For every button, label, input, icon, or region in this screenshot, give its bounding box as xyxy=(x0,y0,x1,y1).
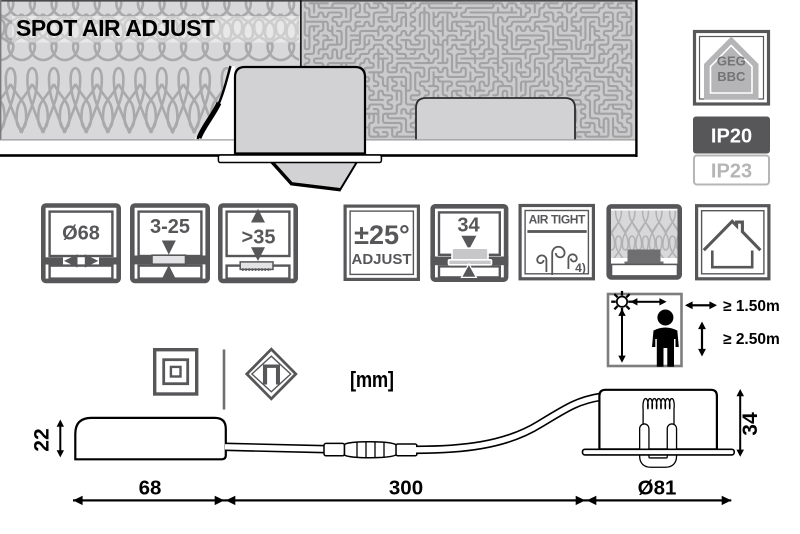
svg-text:Ø81: Ø81 xyxy=(638,477,677,500)
svg-text:±25°: ±25° xyxy=(354,220,410,250)
svg-text:ADJUST: ADJUST xyxy=(351,251,411,268)
svg-text:68: 68 xyxy=(139,477,162,500)
svg-text:Π: Π xyxy=(261,360,282,392)
svg-text:3-25: 3-25 xyxy=(150,216,190,238)
svg-text:22: 22 xyxy=(31,428,54,451)
svg-text:>35: >35 xyxy=(242,227,276,249)
svg-text:4): 4) xyxy=(575,261,586,275)
svg-text:AIR TIGHT: AIR TIGHT xyxy=(529,213,586,227)
svg-text:≥ 1.50m: ≥ 1.50m xyxy=(723,298,780,315)
svg-text:IP23: IP23 xyxy=(711,161,752,183)
svg-text:300: 300 xyxy=(389,477,423,500)
svg-text:GEG: GEG xyxy=(717,54,746,69)
svg-text:34: 34 xyxy=(457,215,480,237)
svg-text:34: 34 xyxy=(739,412,762,436)
svg-text:SPOT AIR ADJUST: SPOT AIR ADJUST xyxy=(16,15,215,41)
svg-text:[mm]: [mm] xyxy=(350,367,394,392)
svg-text:IP20: IP20 xyxy=(711,126,752,148)
svg-text:≥ 2.50m: ≥ 2.50m xyxy=(723,331,780,348)
svg-text:BBC: BBC xyxy=(717,69,746,84)
svg-text:Ø68: Ø68 xyxy=(62,223,100,245)
